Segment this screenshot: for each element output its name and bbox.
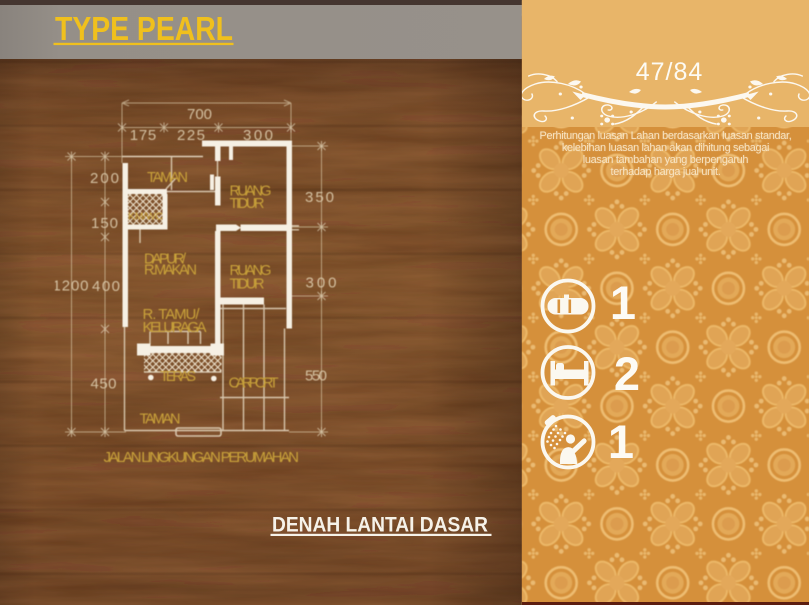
svg-text:CARPORT: CARPORT xyxy=(229,375,279,392)
svg-text:175: 175 xyxy=(130,127,157,144)
svg-text:DENAH LANTAI DASAR: DENAH LANTAI DASAR xyxy=(272,513,488,537)
svg-text:150: 150 xyxy=(91,215,118,232)
svg-text:TIDUR: TIDUR xyxy=(230,277,265,293)
svg-text:TAMAN: TAMAN xyxy=(147,170,188,186)
svg-text:300: 300 xyxy=(306,275,337,292)
svg-text:2: 2 xyxy=(614,347,640,400)
svg-text:R.MAKAN: R.MAKAN xyxy=(144,263,197,279)
svg-text:1: 1 xyxy=(608,415,634,468)
svg-text:TIDUR: TIDUR xyxy=(230,196,265,212)
svg-text:225: 225 xyxy=(177,127,205,144)
svg-text:KELURAGA: KELURAGA xyxy=(143,319,207,336)
svg-text:KM/WC: KM/WC xyxy=(128,211,163,223)
svg-text:1: 1 xyxy=(610,276,636,329)
svg-text:1200: 1200 xyxy=(55,278,89,295)
svg-text:TAMAN: TAMAN xyxy=(140,412,181,428)
svg-text:JALAN LINGKUNGAN PERUMAHAN: JALAN LINGKUNGAN PERUMAHAN xyxy=(104,449,300,466)
svg-text:TERAS: TERAS xyxy=(160,369,196,385)
svg-text:700: 700 xyxy=(187,106,212,123)
svg-text:200: 200 xyxy=(90,170,119,187)
svg-text:350: 350 xyxy=(305,189,334,206)
svg-text:400: 400 xyxy=(92,278,120,295)
svg-text:550: 550 xyxy=(305,368,327,385)
svg-text:450: 450 xyxy=(91,376,117,393)
svg-text:TYPE PEARL: TYPE PEARL xyxy=(55,11,233,48)
svg-text:300: 300 xyxy=(243,127,273,144)
